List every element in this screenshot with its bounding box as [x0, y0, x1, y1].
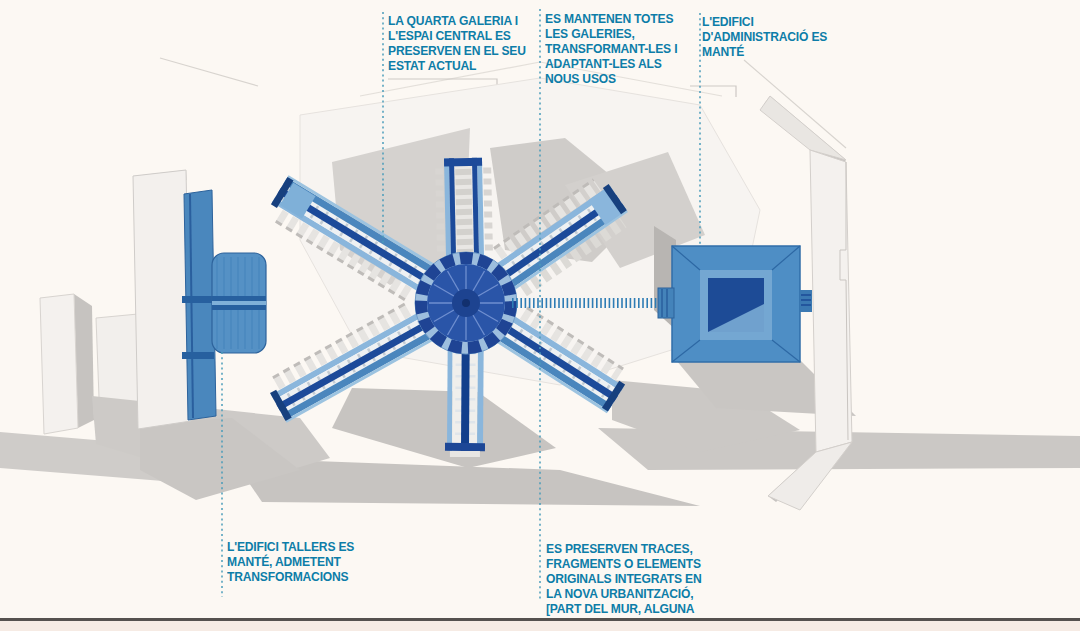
tallers-vault-building: [212, 253, 266, 353]
admin-building: [658, 246, 812, 362]
site-plan-drawing: [0, 0, 1080, 631]
annotation-administracio: L'EDIFICI D'ADMINISTRACIÓ ES MANTÉ: [702, 14, 827, 59]
tallers-blue-wing: [184, 190, 216, 420]
tallers-building: [133, 170, 266, 429]
annotation-traces: ES PRESERVEN TRACES, FRAGMENTS O ELEMENT…: [546, 541, 702, 616]
admin-right-stub: [800, 290, 812, 312]
annotation-galeries: ES MANTENEN TOTES LES GALERIES, TRANSFOR…: [545, 11, 677, 86]
bottom-strip: [0, 621, 1080, 631]
annotation-quarta-galeria: LA QUARTA GALERIA I L'ESPAI CENTRAL ES P…: [388, 13, 526, 73]
annotation-tallers: L'EDIFICI TALLERS ES MANTÉ, ADMETENT TRA…: [227, 539, 354, 584]
central-hub: [415, 252, 517, 354]
